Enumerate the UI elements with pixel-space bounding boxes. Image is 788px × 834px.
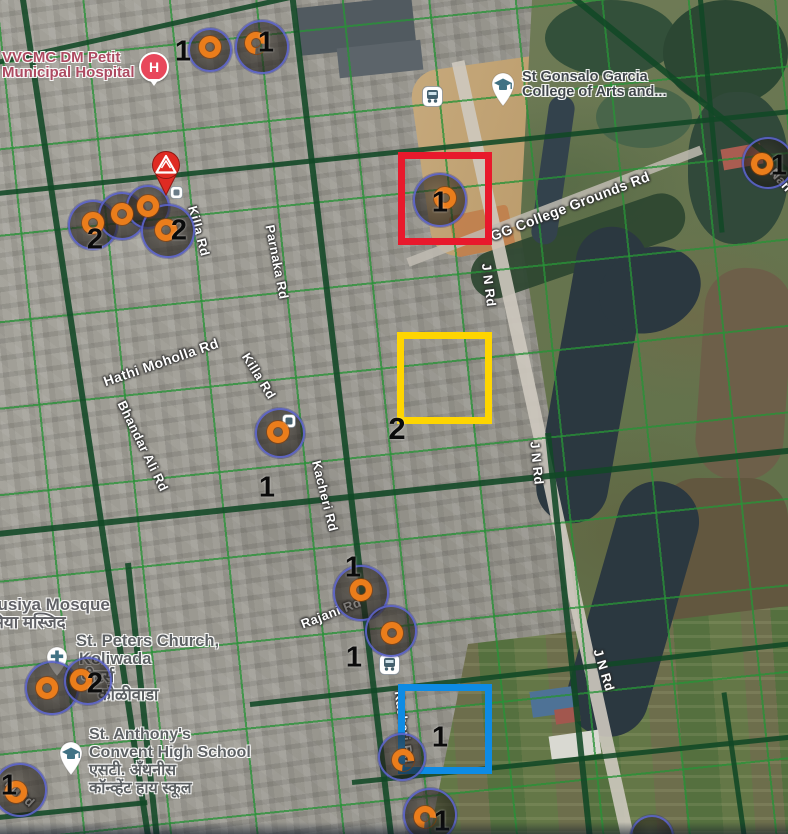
marker-count: 2 bbox=[87, 668, 103, 701]
marker-count: 1 bbox=[346, 642, 362, 675]
marker-count: 2 bbox=[388, 411, 405, 447]
college-label-line1: St Gonsalo Garcia bbox=[522, 70, 666, 85]
school-label-line1: St. Anthony's bbox=[89, 726, 251, 744]
church-label-hindi2: कोळीवाडा bbox=[98, 686, 219, 704]
marker-count: 1 bbox=[771, 150, 787, 183]
portal-dot[interactable] bbox=[199, 36, 221, 58]
bottom-edge-fade bbox=[0, 822, 788, 834]
marker-count: 2 bbox=[171, 215, 187, 248]
portal-dot[interactable] bbox=[36, 677, 58, 699]
church-label-line1: St. Peters Church, bbox=[76, 632, 219, 650]
marker-count: 1 bbox=[345, 552, 361, 585]
marker-count: 1 bbox=[258, 27, 274, 60]
bus-stop-icon[interactable] bbox=[379, 654, 400, 680]
yellow-square-annotation[interactable] bbox=[397, 332, 492, 424]
ingress-portal-pin-icon[interactable] bbox=[149, 150, 183, 201]
school-icon[interactable] bbox=[57, 740, 85, 781]
satellite-map[interactable]: GG College Grounds Rd J N Rd J N Rd J N … bbox=[0, 0, 788, 834]
marker-count: 1 bbox=[1, 770, 17, 803]
portal-dot[interactable] bbox=[381, 622, 403, 644]
school-label-hindi1: एसटी. अँथनीस bbox=[89, 762, 251, 780]
school-label[interactable]: St. Anthony's Convent High School एसटी. … bbox=[89, 726, 251, 798]
mosque-label-line1: ausiya Mosque bbox=[0, 596, 110, 614]
marker-count: 1 bbox=[432, 722, 448, 755]
marker-count: 1 bbox=[175, 36, 191, 69]
portal-dot[interactable] bbox=[751, 153, 773, 175]
hospital-label-line2: Municipal Hospital bbox=[2, 65, 135, 80]
portal-dot[interactable] bbox=[267, 421, 289, 443]
marker-count: 1 bbox=[259, 472, 275, 505]
bus-stop-icon[interactable] bbox=[422, 86, 443, 112]
marker-count: 2 bbox=[87, 224, 103, 257]
marker-count: 1 bbox=[432, 187, 448, 220]
hospital-label[interactable]: VVCMC DM Petit Municipal Hospital bbox=[2, 50, 135, 80]
school-label-hindi2: कॉन्व्हेंट हाय स्कूल bbox=[89, 780, 251, 798]
school-icon[interactable] bbox=[489, 71, 517, 112]
college-label-line2: College of Arts and... bbox=[522, 85, 666, 100]
hospital-pin-icon[interactable]: H bbox=[139, 52, 169, 82]
mosque-label[interactable]: ausiya Mosque सिया मस्जिद bbox=[0, 596, 110, 632]
hospital-label-line1: VVCMC DM Petit bbox=[2, 50, 135, 65]
mosque-label-hindi: सिया मस्जिद bbox=[0, 614, 110, 632]
hospital-h-glyph: H bbox=[149, 59, 159, 75]
college-label[interactable]: St Gonsalo Garcia College of Arts and... bbox=[522, 70, 666, 100]
school-label-line2: Convent High School bbox=[89, 744, 251, 762]
portal-dot[interactable] bbox=[111, 203, 133, 225]
